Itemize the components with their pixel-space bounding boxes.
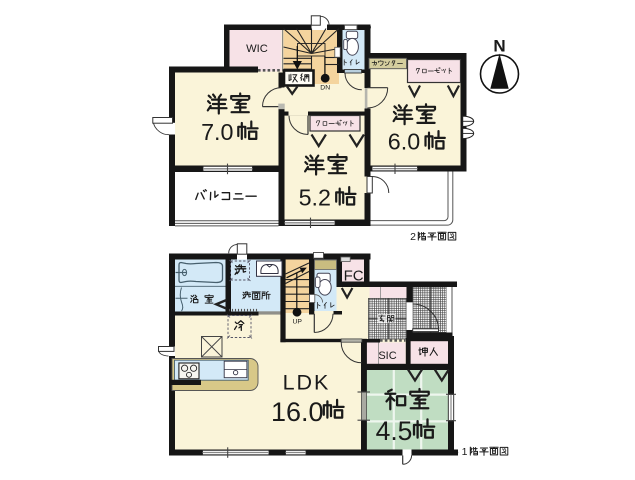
svg-text:4.5: 4.5 [376,416,413,446]
svg-text:N: N [493,37,505,56]
svg-text:6.0: 6.0 [388,129,420,155]
svg-text:LDK: LDK [283,370,331,394]
svg-text:7.0: 7.0 [201,119,233,145]
svg-text:5.2: 5.2 [299,185,331,211]
svg-text:UP: UP [292,318,302,325]
svg-text:16.0: 16.0 [271,397,324,427]
svg-text:DN: DN [320,85,330,92]
svg-text:FC: FC [344,268,364,285]
svg-text:2: 2 [410,231,416,243]
svg-text:SIC: SIC [378,350,396,362]
svg-text:1: 1 [462,446,468,458]
svg-text:WIC: WIC [246,43,268,55]
